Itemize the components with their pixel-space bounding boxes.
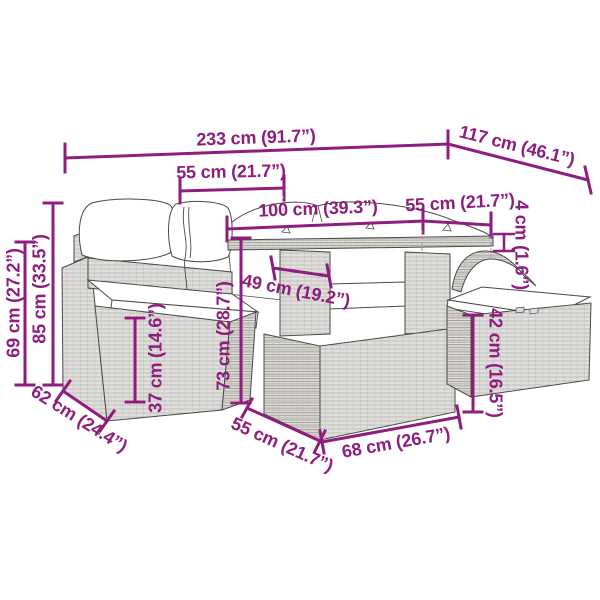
dim-seat-height-label: 37 cm (14.6”)	[146, 303, 167, 412]
back-pillow-left	[79, 199, 175, 261]
dim-table-top-thickness-label: 4 cm (1.6”)	[511, 200, 532, 290]
ottoman-illustration	[447, 287, 591, 397]
dim-ottoman-height-label: 42 cm (16.5”)	[485, 308, 506, 417]
dim-overall-width-label: 233 cm (91.7”)	[196, 125, 316, 150]
dimension-diagram: 233 cm (91.7”) 117 cm (46.1”) 55 cm (21.…	[0, 0, 600, 600]
back-pillow-right	[169, 201, 233, 261]
dim-table-height-label: 73 cm (28.7”)	[214, 281, 235, 390]
dim-total-height-label: 85 cm (33.5”)	[30, 234, 51, 343]
dim-back-height-label: 69 cm (27.2”)	[4, 248, 25, 357]
dim-table-top-width-label: 100 cm (39.3”)	[258, 196, 378, 221]
dim-seat-width-label: 55 cm (21.7”)	[176, 161, 286, 184]
